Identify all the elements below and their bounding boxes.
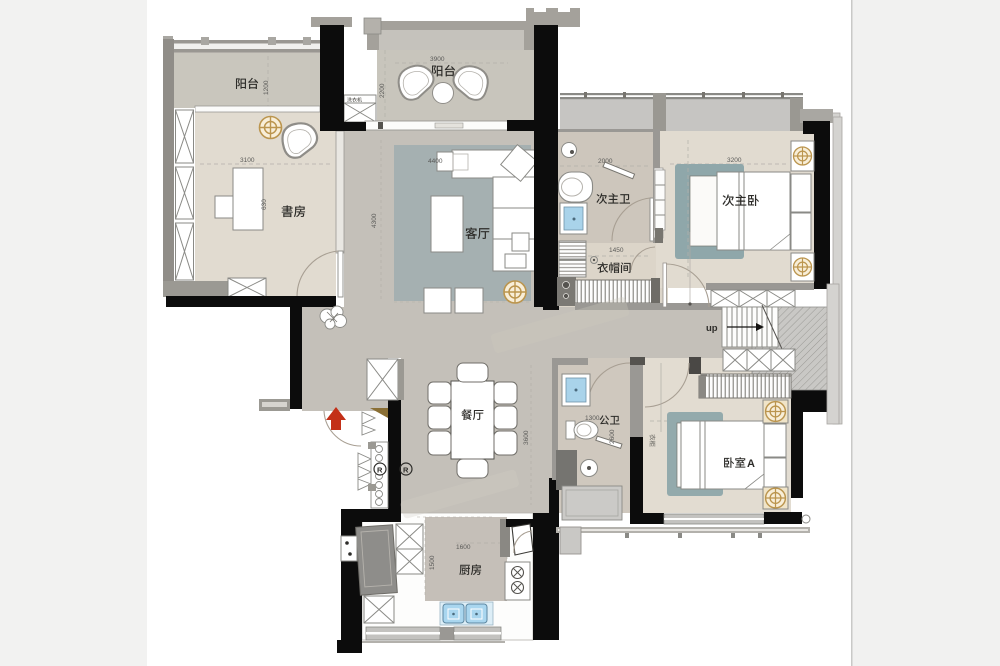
svg-text:3100: 3100	[240, 157, 255, 164]
svg-text:2600: 2600	[609, 429, 616, 444]
svg-text:3900: 3900	[430, 56, 445, 63]
svg-text:R: R	[377, 466, 383, 475]
svg-text:1450: 1450	[609, 247, 624, 254]
svg-text:R: R	[403, 466, 409, 475]
svg-text:1200: 1200	[263, 80, 270, 95]
svg-text:4400: 4400	[428, 158, 443, 165]
svg-text:A: A	[747, 458, 755, 470]
svg-text:2200: 2200	[379, 83, 386, 98]
svg-text:3600: 3600	[523, 430, 530, 445]
svg-text:4300: 4300	[371, 213, 378, 228]
svg-text:up: up	[706, 323, 718, 334]
svg-text:1500: 1500	[429, 555, 436, 570]
svg-text:3200: 3200	[727, 157, 742, 164]
svg-text:1600: 1600	[456, 544, 471, 551]
svg-text:630: 630	[261, 199, 268, 210]
svg-text:1300: 1300	[585, 415, 600, 422]
